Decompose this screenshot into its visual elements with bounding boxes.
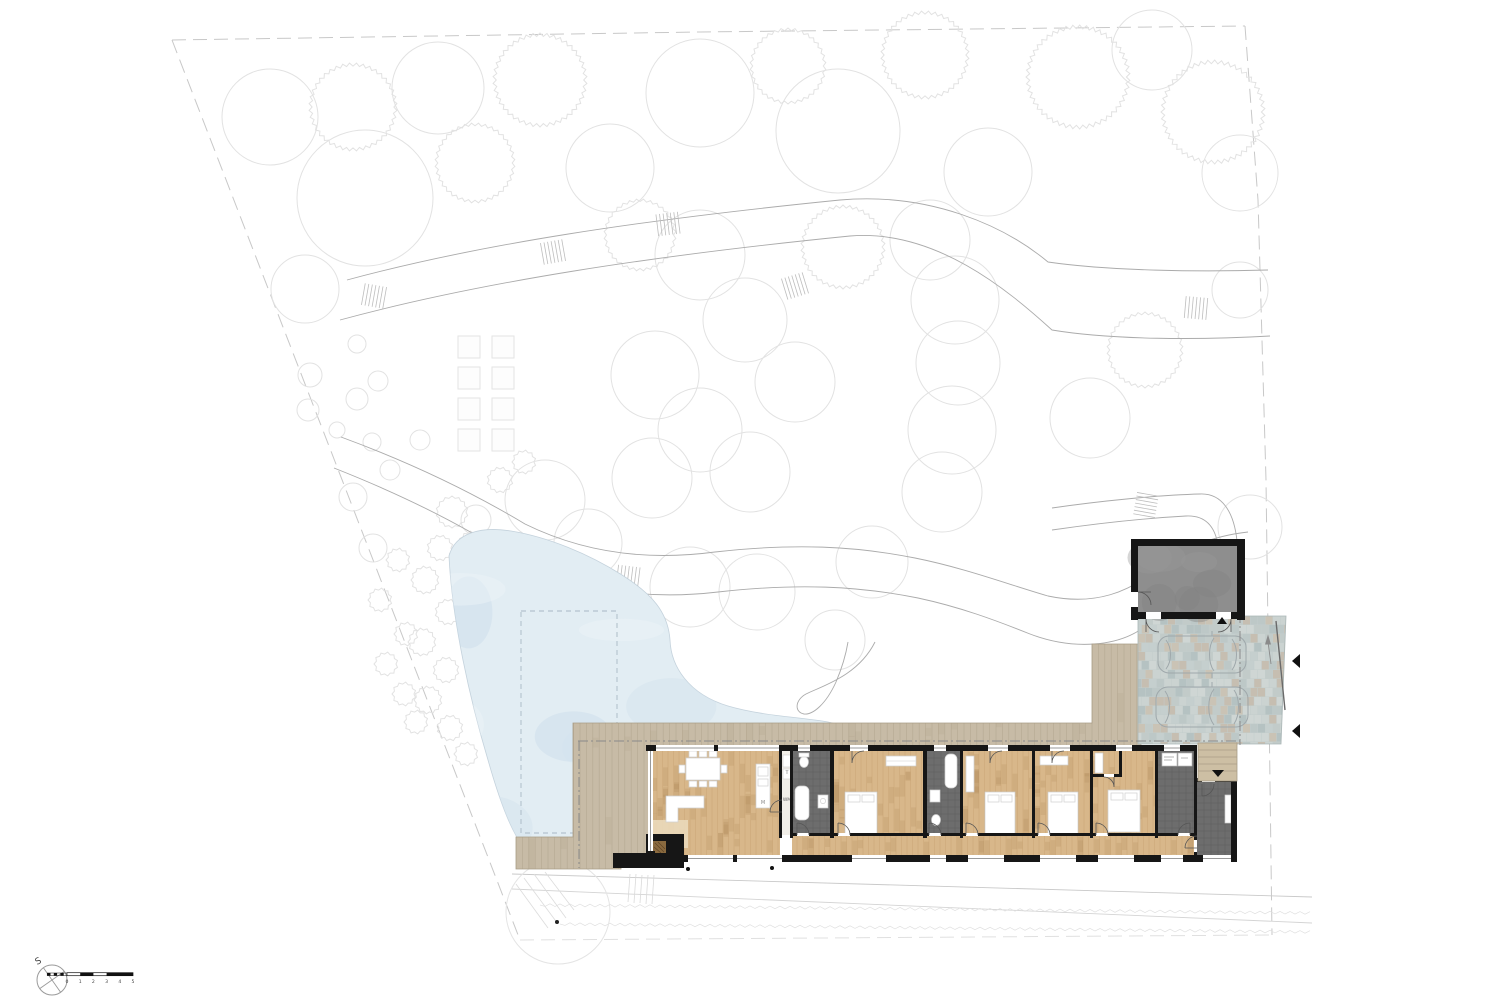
pillow xyxy=(1064,795,1075,802)
driveway-paving xyxy=(1134,613,1291,751)
tree-canopy-jagged xyxy=(309,63,397,151)
tree-canopy xyxy=(805,610,865,670)
terrain-zigzag xyxy=(540,904,1310,914)
tree-canopy-jagged xyxy=(394,622,418,646)
tree-canopy xyxy=(944,128,1032,216)
garage-door-opening xyxy=(1146,612,1161,619)
terrain-lines xyxy=(506,860,1312,964)
existing-tree-hatch xyxy=(516,872,574,928)
path-steps xyxy=(781,272,808,299)
house: M xyxy=(613,743,1237,868)
tree-canopy xyxy=(658,388,742,472)
tree-canopy-jagged xyxy=(437,715,462,740)
tree-canopy xyxy=(346,388,368,410)
pillow xyxy=(1051,795,1062,802)
scale-tick-label: 0 xyxy=(66,979,69,985)
tree-canopy xyxy=(719,554,795,630)
tree-canopy xyxy=(1050,378,1130,458)
tree-canopy xyxy=(755,342,835,422)
garden-bed xyxy=(458,429,480,451)
garage-door-opening xyxy=(1216,612,1231,619)
scale-tick-label: 3 xyxy=(105,979,108,985)
boundary-left xyxy=(172,40,520,940)
window xyxy=(1163,745,1182,751)
tree-canopy xyxy=(359,534,387,562)
wardrobe xyxy=(1040,756,1068,765)
garden-bed xyxy=(492,367,514,389)
window xyxy=(1202,855,1233,862)
window xyxy=(797,745,812,751)
tree-canopy xyxy=(1202,135,1278,211)
wardrobe xyxy=(1095,753,1103,773)
pillow xyxy=(1125,793,1137,800)
scale-tick-label: 1 xyxy=(79,979,82,985)
tree-canopy-jagged xyxy=(392,682,416,706)
toilet xyxy=(800,757,809,768)
tree-canopy xyxy=(271,255,339,323)
garden-bed xyxy=(492,398,514,420)
appliance xyxy=(1162,753,1177,766)
slope-line xyxy=(512,874,1312,897)
path-spur-hook xyxy=(797,642,875,714)
tree-canopy-jagged xyxy=(408,628,436,656)
scale-bar-subdivisions xyxy=(47,973,67,976)
garage-side-door-opening xyxy=(1131,592,1138,607)
pond-texture xyxy=(414,573,506,606)
tree-canopy-jagged xyxy=(435,123,515,203)
tree-canopy xyxy=(505,460,585,540)
window xyxy=(851,855,888,862)
tree-canopy-jagged xyxy=(801,205,885,289)
toilet-tank xyxy=(799,753,809,757)
tree-canopy xyxy=(297,130,433,266)
tree-canopy xyxy=(297,399,319,421)
kitchen-island-label: M xyxy=(761,800,765,806)
north-label: S xyxy=(34,956,44,968)
tree-canopy xyxy=(1112,10,1192,90)
tree-canopy-jagged xyxy=(1026,25,1130,129)
tree-canopy xyxy=(363,433,381,451)
tree-canopy xyxy=(911,256,999,344)
tree-canopy xyxy=(348,335,366,353)
wardrobe xyxy=(966,756,974,792)
garden-bed xyxy=(492,336,514,358)
entrance-arrow-icon xyxy=(1292,654,1300,668)
appliance xyxy=(1178,753,1192,766)
window xyxy=(1039,855,1078,862)
scale-tick-label: 5 xyxy=(132,979,135,985)
garden-bed xyxy=(458,398,480,420)
tree-canopy xyxy=(710,432,790,512)
kitchen-island: M xyxy=(756,764,770,808)
tree-canopy xyxy=(655,210,745,300)
tree-canopy xyxy=(410,430,430,450)
pond-texture xyxy=(722,663,812,690)
utility-room xyxy=(1162,753,1192,766)
shaft-label: T xyxy=(785,770,789,776)
window xyxy=(929,855,948,862)
tree-canopy xyxy=(380,460,400,480)
pond-texture xyxy=(757,610,786,655)
path-upper-north xyxy=(347,199,1268,280)
compass-cross-icon xyxy=(40,968,65,993)
tree-canopy xyxy=(392,42,484,134)
tree-canopy-jagged xyxy=(374,652,398,676)
pillow xyxy=(862,795,874,802)
tree-canopy xyxy=(908,386,996,474)
tree-canopy xyxy=(646,39,754,147)
survey-point xyxy=(555,920,559,924)
bathtub xyxy=(795,786,809,820)
window xyxy=(987,745,1010,751)
tree-canopy-jagged xyxy=(433,657,458,682)
scale-tick-label: 2 xyxy=(92,979,95,985)
terrain-zigzag xyxy=(560,923,1310,933)
entry-bench xyxy=(1225,795,1231,823)
tree-canopy xyxy=(566,124,654,212)
tree-canopy xyxy=(339,483,367,511)
tree-canopy-jagged xyxy=(487,467,512,492)
tree-canopy xyxy=(611,331,699,419)
tree-canopy-jagged xyxy=(404,710,428,734)
boundary-bottom xyxy=(520,935,1272,940)
tree-canopy xyxy=(222,69,318,165)
pillow xyxy=(848,795,860,802)
window xyxy=(1160,855,1185,862)
tree-canopy-jagged xyxy=(414,686,442,714)
garden-beds xyxy=(458,336,514,451)
tree-canopy-jagged xyxy=(386,548,410,572)
tree-canopy-jagged xyxy=(411,566,439,594)
tree-canopy xyxy=(836,526,908,598)
window xyxy=(933,745,948,751)
path-upper-south xyxy=(340,235,1270,338)
pond-texture xyxy=(579,619,664,641)
tree-canopy xyxy=(703,278,787,362)
sink xyxy=(930,790,940,802)
pillow xyxy=(1111,793,1123,800)
site-entrance-markers xyxy=(1292,654,1300,738)
garden-bed xyxy=(458,336,480,358)
tree-canopy-jagged xyxy=(881,11,969,99)
path-steps xyxy=(361,283,386,308)
path-steps xyxy=(1184,296,1207,320)
tree-canopy-jagged xyxy=(604,199,676,271)
scale-bar-fill xyxy=(107,973,133,976)
bathtub xyxy=(945,754,957,788)
tree-canopy xyxy=(776,69,900,193)
site-plan-drawing: M xyxy=(0,0,1499,1002)
garden-bed xyxy=(458,367,480,389)
window xyxy=(849,745,870,751)
slope-hatch xyxy=(628,874,654,904)
deck-column xyxy=(686,867,690,871)
garage xyxy=(1127,539,1245,632)
entry-steps xyxy=(1198,743,1237,781)
sink xyxy=(818,795,828,808)
pillow xyxy=(988,795,999,802)
pillow xyxy=(1001,795,1012,802)
window xyxy=(1049,745,1072,751)
window xyxy=(967,855,1006,862)
scale-bar-fill xyxy=(80,973,93,976)
tree-canopy-jagged xyxy=(493,33,587,127)
boundary-right xyxy=(1245,26,1272,935)
tree-canopy-jagged xyxy=(454,742,478,766)
garden-bed xyxy=(492,429,514,451)
tree-canopy xyxy=(329,422,345,438)
tree-canopy-jagged xyxy=(750,28,826,104)
site-plan: M xyxy=(0,0,1499,1002)
entry-hall xyxy=(1225,795,1231,823)
path-steps xyxy=(540,239,565,264)
tree-canopy xyxy=(612,438,692,518)
tree-canopy-jagged xyxy=(1161,60,1265,164)
window xyxy=(1097,855,1136,862)
pond-texture xyxy=(418,698,484,752)
scale-tick-label: 4 xyxy=(118,979,121,985)
window xyxy=(1115,745,1134,751)
entrance-arrow-icon xyxy=(1292,724,1300,738)
tree-canopy xyxy=(368,371,388,391)
tree-canopy-jagged xyxy=(368,588,392,612)
deck-column xyxy=(770,866,774,870)
tree-canopy-jagged xyxy=(1107,312,1183,388)
tree-canopy xyxy=(902,452,982,532)
